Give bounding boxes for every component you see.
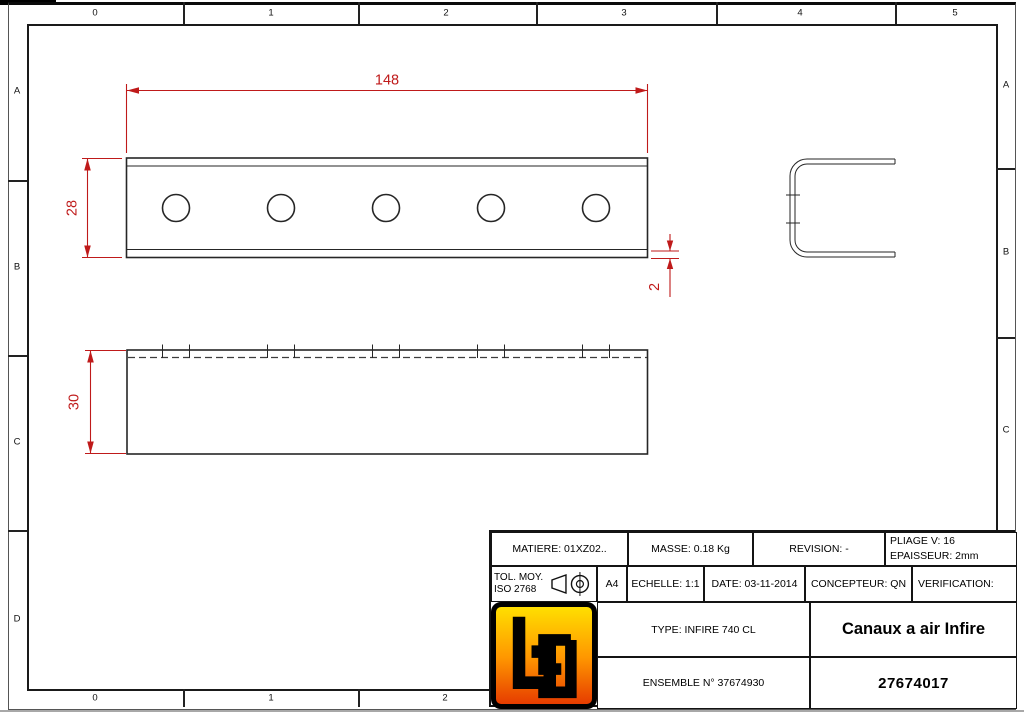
projection-symbol-icon bbox=[548, 571, 594, 597]
title-block: MATIERE: 01XZ02.. MASSE: 0.18 Kg REVISIO… bbox=[489, 530, 1015, 707]
bg-logo-letters bbox=[496, 607, 592, 704]
dimension-length: 148 bbox=[127, 73, 648, 154]
verification-cell: VERIFICATION: bbox=[912, 566, 1017, 602]
dim-value-height: 28 bbox=[65, 200, 81, 216]
dim-value-length: 148 bbox=[375, 73, 399, 89]
side-view-profile bbox=[786, 159, 895, 257]
dimension-height: 28 bbox=[65, 159, 123, 258]
dimension-depth: 30 bbox=[67, 351, 127, 454]
masse-cell: MASSE: 0.18 Kg bbox=[628, 532, 753, 566]
revision-cell: REVISION: - bbox=[753, 532, 885, 566]
pliage-value: PLIAGE V: 16 bbox=[890, 534, 955, 549]
top-view bbox=[127, 158, 648, 258]
dim-value-thickness: 2 bbox=[647, 283, 663, 291]
tolerance-line1: TOL. MOY. bbox=[494, 572, 543, 585]
pliage-epaisseur-cell: PLIAGE V: 16 EPAISSEUR: 2mm bbox=[885, 532, 1017, 566]
ensemble-cell: ENSEMBLE N° 37674930 bbox=[597, 657, 810, 709]
drawing-sheet: 0 1 2 3 4 5 0 1 2 A B C D A B C bbox=[0, 0, 1024, 715]
type-cell: TYPE: INFIRE 740 CL bbox=[597, 602, 810, 657]
format-cell: A4 bbox=[597, 566, 627, 602]
hole-projection-ticks bbox=[163, 345, 610, 359]
tolerance-cell: TOL. MOY. ISO 2768 bbox=[491, 566, 597, 602]
dimension-thickness: 2 bbox=[647, 234, 679, 297]
bottom-view bbox=[127, 345, 648, 455]
matiere-cell: MATIERE: 01XZ02.. bbox=[491, 532, 628, 566]
concepteur-cell: CONCEPTEUR: QN bbox=[805, 566, 912, 602]
bg-logo bbox=[491, 602, 597, 709]
drawing-title: Canaux a air Infire bbox=[810, 602, 1017, 657]
dim-value-depth: 30 bbox=[67, 394, 83, 410]
date-cell: DATE: 03-11-2014 bbox=[704, 566, 805, 602]
drawing-number: 27674017 bbox=[810, 657, 1017, 709]
echelle-cell: ECHELLE: 1:1 bbox=[627, 566, 704, 602]
hole-circles bbox=[163, 195, 610, 222]
epaisseur-value: EPAISSEUR: 2mm bbox=[890, 549, 979, 564]
tolerance-line2: ISO 2768 bbox=[494, 584, 543, 597]
